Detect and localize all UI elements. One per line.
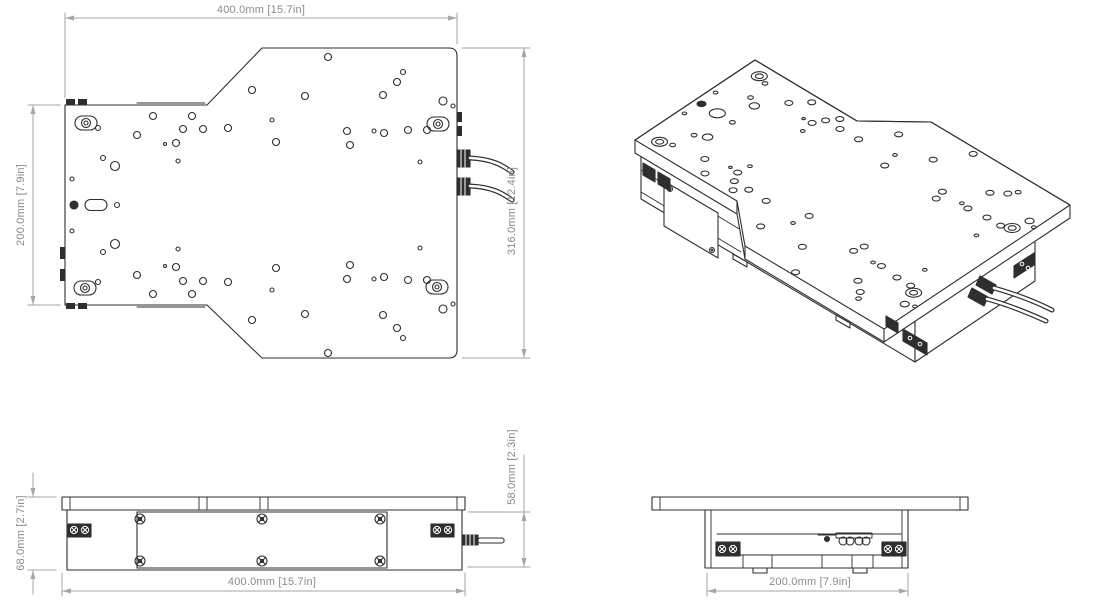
top-view (60, 48, 512, 358)
isometric-view (635, 60, 1070, 362)
front-view (62, 497, 504, 570)
dim-top-width-label: 400.0mm [15.7in] (217, 4, 305, 16)
technical-drawing-canvas (0, 0, 1100, 608)
dim-side-depth-label: 200.0mm [7.9in] (769, 576, 851, 588)
dim-body-height-label: 58.0mm [2.3in] (506, 429, 518, 505)
side-view (652, 497, 968, 573)
dim-right-depth-label: 316.0mm [12.4in] (506, 167, 518, 255)
dim-front-width-label: 400.0mm [15.7in] (228, 576, 316, 588)
dim-front-height-label: 68.0mm [2.7in] (15, 495, 27, 571)
technical-drawing-page: 400.0mm [15.7in] 200.0mm [7.9in] 316.0mm… (0, 0, 1100, 608)
dim-left-depth-label: 200.0mm [7.9in] (15, 164, 27, 246)
